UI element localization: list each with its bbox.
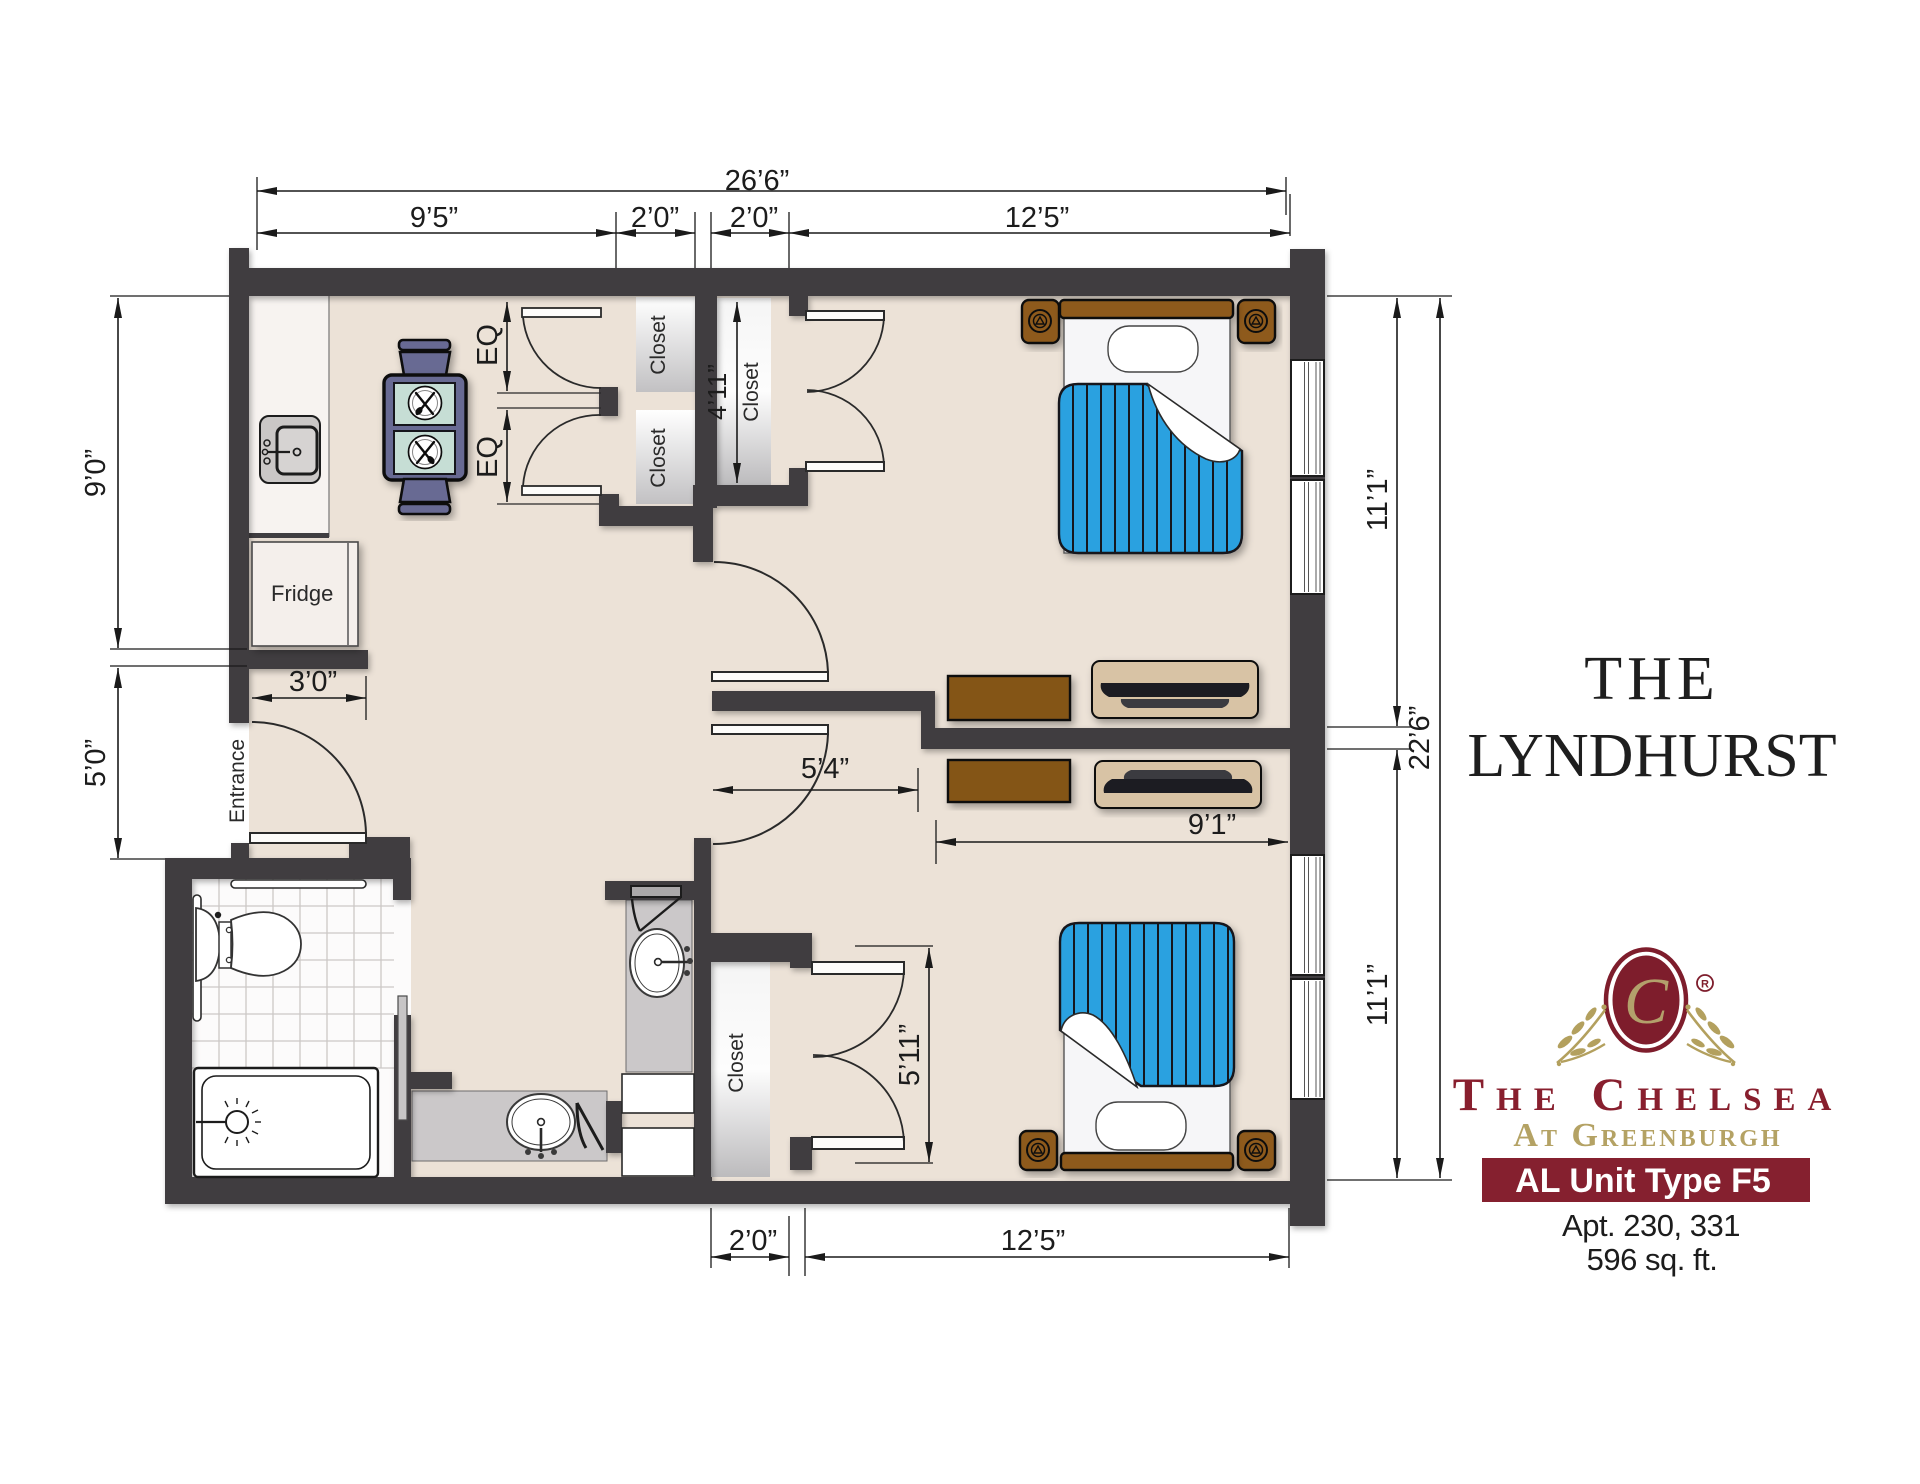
- svg-text:THE: THE: [1584, 645, 1720, 713]
- svg-text:5’4”: 5’4”: [801, 753, 849, 785]
- svg-text:2’0”: 2’0”: [631, 202, 679, 234]
- svg-text:EQ: EQ: [472, 324, 504, 366]
- svg-text:EQ: EQ: [472, 436, 504, 478]
- svg-text:Closet: Closet: [740, 362, 763, 422]
- svg-text:At Greenburgh: At Greenburgh: [1513, 1117, 1782, 1154]
- svg-text:9’0”: 9’0”: [80, 449, 112, 497]
- svg-text:Apt. 230, 331: Apt. 230, 331: [1562, 1208, 1740, 1243]
- svg-text:11’1”: 11’1”: [1362, 964, 1394, 1026]
- svg-text:9’1”: 9’1”: [1188, 809, 1236, 841]
- svg-text:LYNDHURST: LYNDHURST: [1467, 722, 1836, 790]
- svg-text:Closet: Closet: [725, 1033, 748, 1093]
- svg-text:The Chelsea: The Chelsea: [1453, 1069, 1844, 1121]
- svg-text:12’5”: 12’5”: [1005, 202, 1070, 234]
- svg-text:5’11”: 5’11”: [894, 1024, 926, 1086]
- svg-text:Closet: Closet: [647, 315, 670, 375]
- svg-text:12’5”: 12’5”: [1001, 1225, 1066, 1257]
- svg-text:AL Unit Type F5: AL Unit Type F5: [1515, 1162, 1771, 1200]
- svg-text:11’1”: 11’1”: [1362, 469, 1394, 531]
- svg-text:22’6”: 22’6”: [1404, 706, 1436, 771]
- svg-text:5’0”: 5’0”: [80, 739, 112, 787]
- svg-text:26’6”: 26’6”: [725, 165, 790, 197]
- svg-text:Closet: Closet: [647, 428, 670, 488]
- svg-text:R: R: [1701, 979, 1709, 991]
- svg-text:3’0”: 3’0”: [289, 666, 337, 698]
- svg-text:2’0”: 2’0”: [729, 1225, 777, 1257]
- svg-text:9’5”: 9’5”: [410, 202, 458, 234]
- svg-text:Entrance: Entrance: [226, 739, 249, 823]
- svg-text:4’11”: 4’11”: [702, 364, 732, 420]
- svg-text:596 sq. ft.: 596 sq. ft.: [1587, 1242, 1718, 1277]
- svg-text:2’0”: 2’0”: [730, 202, 778, 234]
- svg-text:Fridge: Fridge: [271, 581, 333, 606]
- svg-text:C: C: [1624, 965, 1669, 1038]
